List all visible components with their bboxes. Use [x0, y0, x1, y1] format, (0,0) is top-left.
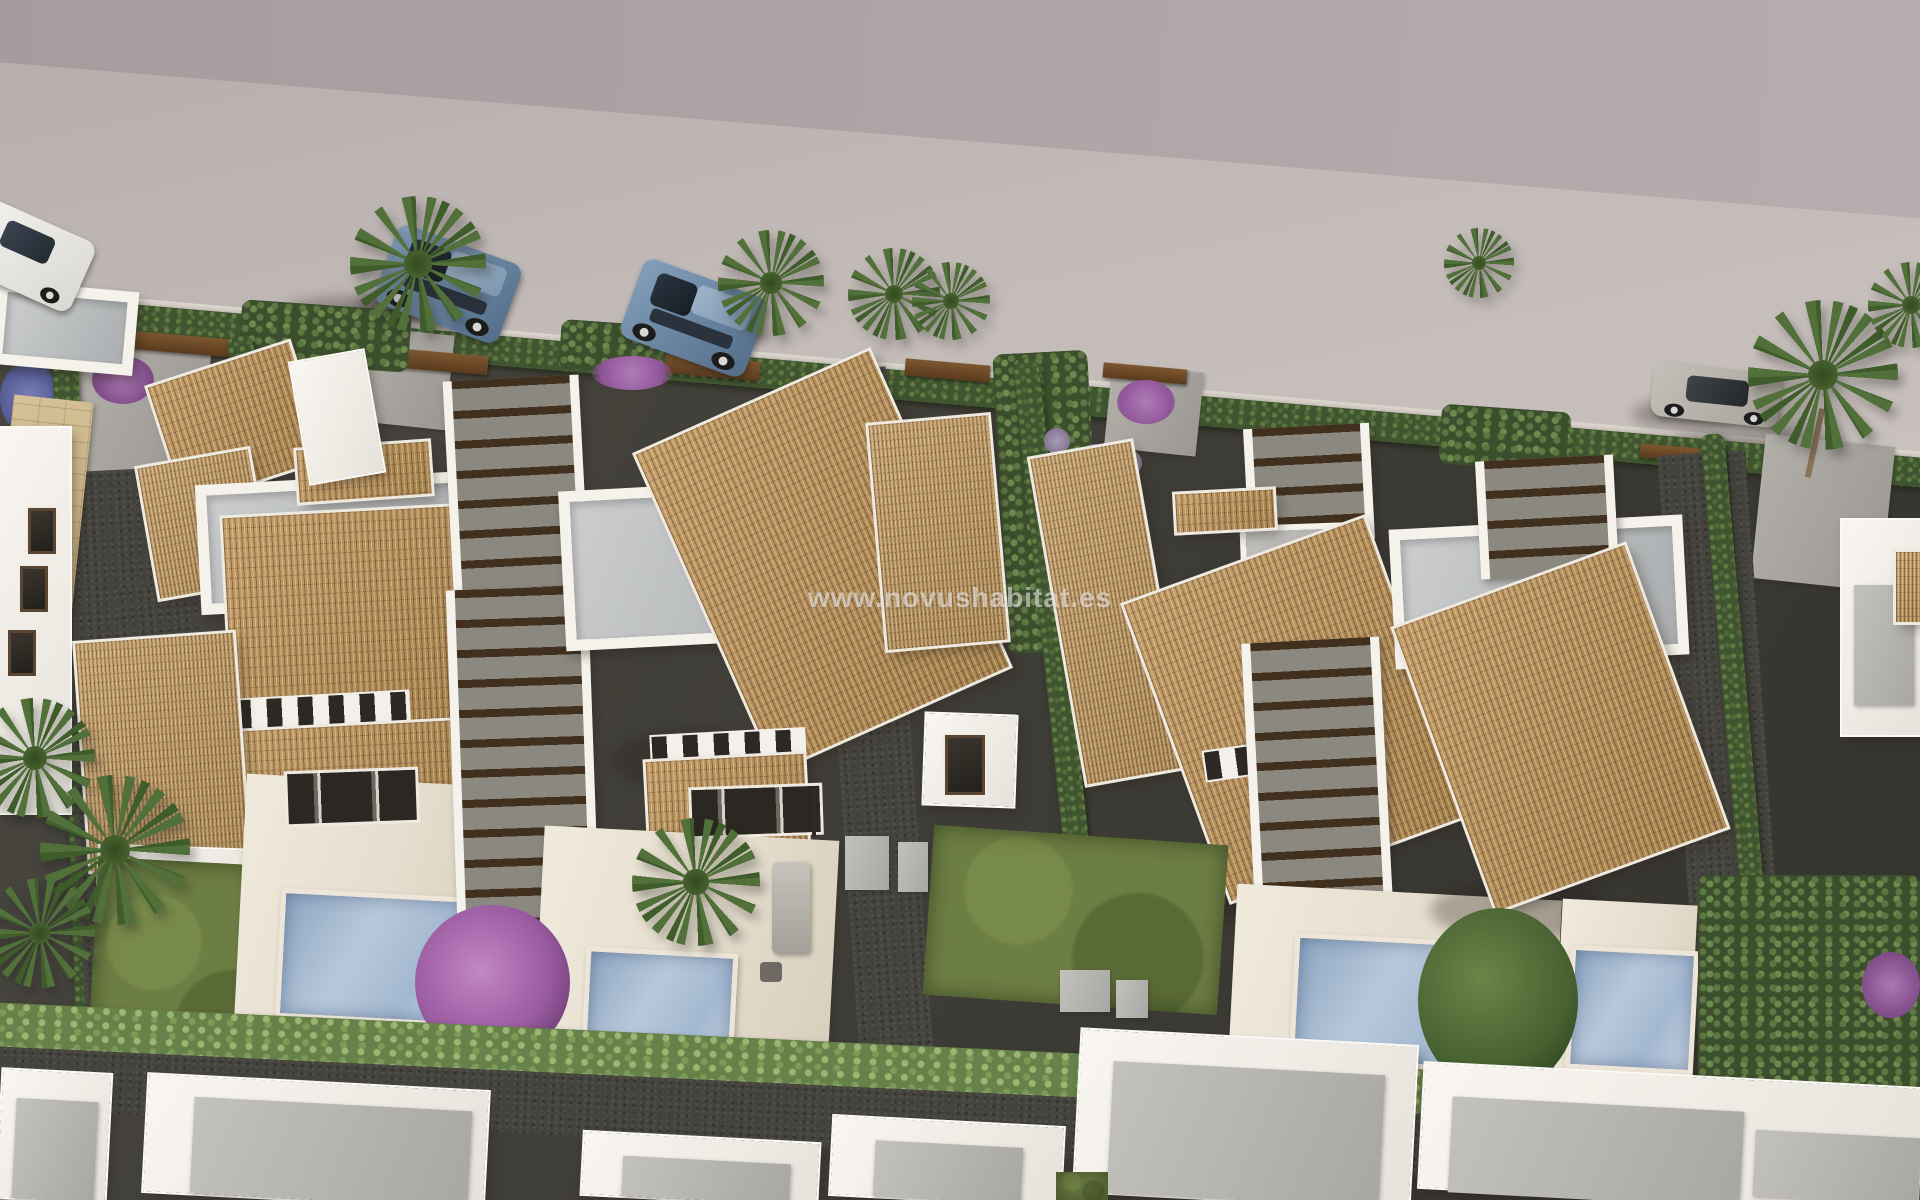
- villa-b-east-roof: [868, 415, 1007, 650]
- rear-house-roof: [1448, 1096, 1745, 1200]
- utility-pad: [898, 842, 928, 892]
- palm-tree: [1444, 228, 1514, 298]
- street-upper-band: [0, 0, 1920, 240]
- sun-lounger: [772, 862, 810, 954]
- lawn-sliver: [1056, 1172, 1108, 1200]
- rear-house-roof: [1107, 1061, 1386, 1200]
- bougainvillea-bush: [1117, 380, 1175, 424]
- palm-tree: [912, 262, 990, 340]
- garden-lamp: [812, 788, 816, 836]
- window: [28, 508, 56, 554]
- palm-tree: [350, 196, 486, 332]
- rear-house-roof: [190, 1097, 473, 1200]
- aerial-villa-render: www.novushabitat.es: [0, 0, 1920, 1200]
- bougainvillea-bush: [592, 356, 672, 390]
- car-wheel: [709, 349, 737, 373]
- bougainvillea-bush: [1862, 952, 1920, 1018]
- car-wheel: [1664, 403, 1685, 418]
- car-wheel: [463, 315, 491, 339]
- utility-pad: [845, 836, 889, 890]
- window: [20, 566, 48, 612]
- lavender-ball: [1044, 428, 1070, 454]
- swimming-pool: [1565, 945, 1699, 1076]
- walkway-pergola: [1241, 637, 1393, 909]
- rear-house-roof: [1752, 1130, 1920, 1200]
- car-wheel: [38, 284, 62, 306]
- villa-c-top-roof: [1175, 489, 1275, 532]
- roof-sliver: [1896, 552, 1920, 622]
- sliding-glass-doors: [287, 770, 417, 824]
- car-glass: [1685, 375, 1749, 407]
- rear-house-roof: [873, 1140, 1024, 1200]
- palm-tree: [718, 230, 824, 336]
- rear-house-roof: [621, 1156, 791, 1200]
- watermark: www.novushabitat.es: [808, 582, 1112, 614]
- utility-pad: [1116, 980, 1148, 1018]
- utility-pad: [1060, 970, 1110, 1012]
- side-table: [760, 962, 782, 982]
- garden-palm: [632, 818, 760, 946]
- window: [8, 630, 36, 676]
- car-glass: [0, 219, 57, 266]
- car-wheel: [630, 320, 658, 344]
- rear-house-roof: [11, 1098, 98, 1200]
- window: [945, 735, 985, 795]
